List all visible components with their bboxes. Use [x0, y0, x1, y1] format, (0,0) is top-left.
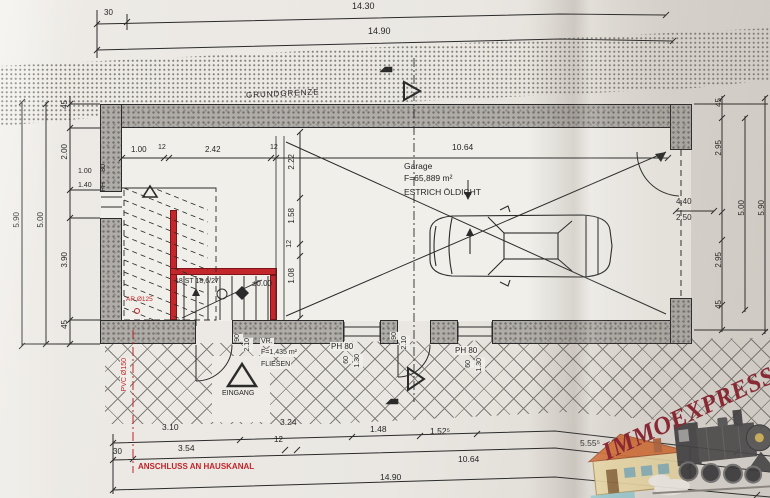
dim-right-250: 2.50	[676, 213, 692, 222]
stairs-steps-label: 18 ST 18,6/27	[175, 278, 219, 286]
garage-name: Garage	[404, 162, 432, 171]
pvc-pipe-label: PVC Ø150	[120, 358, 130, 391]
dim-garage-width: 10.64	[452, 143, 473, 152]
dim-left-590: 5.90	[12, 212, 21, 228]
dim-v-108: 1.08	[287, 268, 296, 284]
door2-width: 90	[390, 332, 400, 340]
dim-bottom-1525: 1.52⁵	[430, 427, 450, 436]
dim-bottom-310: 3.10	[162, 423, 179, 432]
vr-name: VR.	[260, 338, 274, 346]
garage-floor: ESTRICH ÖLDICHT	[404, 188, 481, 197]
vr-floor: FLIESEN	[260, 361, 291, 369]
dim-bottom-354: 3.54	[178, 444, 195, 453]
hauskanal-label: ANSCHLUSS AN HAUSKANAL	[138, 462, 254, 471]
dim-bottom-12: 12	[274, 435, 283, 444]
dim-inner-100: 1.00	[131, 145, 147, 154]
dim-v-12: 12	[286, 240, 294, 248]
dim-right-295-top: 2.95	[714, 140, 723, 156]
garage-area: F=65,889 m²	[404, 174, 452, 183]
dim-top-total-upper: 14.30	[352, 1, 375, 11]
dim-bottom-1064: 10.64	[458, 455, 479, 464]
stairs-level-label: ±0.00	[252, 279, 272, 288]
dim-right-590: 5.90	[757, 200, 766, 216]
dim-bottom-324: 3.24	[280, 418, 297, 427]
dim-left-ph: PH	[100, 182, 108, 192]
dim-left-80: 80	[100, 164, 108, 172]
dim-top-total-lower: 14.90	[368, 26, 391, 36]
window1-width: 60	[342, 356, 352, 364]
dim-left-500: 5.00	[36, 212, 45, 228]
dim-v-158: 1.58	[287, 208, 296, 224]
dim-left-45-bottom: 45	[60, 320, 69, 329]
floor-plan-scan: 30 14.30 14.90 GRUNDGRENZE 1.00 12 2.42 …	[0, 0, 770, 498]
dim-top-30: 30	[104, 8, 113, 17]
dim-left-100: 1.00	[78, 168, 92, 176]
dim-right-500: 5.00	[737, 200, 746, 216]
door1-height: 2.10	[243, 338, 253, 352]
dim-left-140: 1.40	[78, 182, 92, 190]
stairs-ar-label: AR Ø125	[126, 296, 153, 303]
dim-right-440: 4.40	[676, 197, 692, 206]
window2-label: PH 80	[454, 346, 478, 355]
dim-bottom-30: 30	[113, 447, 122, 456]
dim-right-45-bottom: 45	[714, 300, 723, 309]
door1-width: 90	[233, 334, 243, 342]
entrance-label: EINGANG	[222, 390, 254, 398]
car-top-view	[430, 206, 612, 286]
dim-bottom-total: 14.90	[380, 473, 401, 482]
dim-inner-12a: 12	[158, 144, 166, 152]
door2-height: 2.10	[400, 336, 410, 350]
dim-inner-12b: 12	[270, 144, 278, 152]
window2-height: 1.30	[475, 358, 485, 372]
dim-v-222: 2.22	[287, 154, 296, 170]
window1-label: PH 80	[330, 342, 354, 351]
dim-left-45-top: 45	[60, 100, 69, 109]
dim-right-295-bottom: 2.95	[714, 252, 723, 268]
window2-width: 60	[464, 360, 474, 368]
dim-left-200: 2.00	[60, 144, 69, 160]
window1-height: 1.30	[353, 354, 363, 368]
dim-left-390: 3.90	[60, 252, 69, 268]
dim-bottom-148: 1.48	[370, 425, 387, 434]
vr-area: F=1,435 m²	[260, 349, 298, 357]
dim-right-45-top: 45	[714, 98, 723, 107]
dim-inner-242: 2.42	[205, 145, 221, 154]
